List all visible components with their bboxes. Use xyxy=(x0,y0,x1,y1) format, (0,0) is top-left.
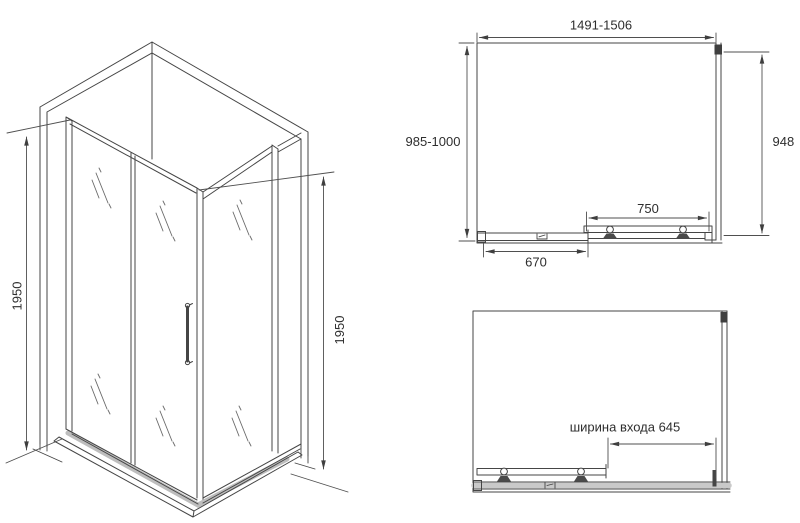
glass-reflection-mark xyxy=(232,406,251,446)
height-left-label: 1950 xyxy=(10,282,25,311)
sliding-door-bar-open xyxy=(477,465,606,482)
dimension-entrance-width: ширина входа 645 xyxy=(570,420,716,479)
fixed-panel-label: 670 xyxy=(525,255,547,270)
bottom-rail xyxy=(473,470,730,491)
dimension-fixed-panel-width: 670 xyxy=(484,244,589,270)
door-panel-label: 750 xyxy=(637,201,659,216)
latch-detail xyxy=(537,234,547,239)
bottom-rail-and-tray xyxy=(54,429,302,517)
wall-profile xyxy=(715,43,723,240)
glass-reflection-mark xyxy=(156,201,175,241)
glass-reflection-mark xyxy=(91,374,110,414)
shower-enclosure-technical-drawing: 1950 1950 xyxy=(0,0,800,523)
entrance-width-label: ширина входа 645 xyxy=(570,420,681,435)
dimension-height-left: 1950 xyxy=(6,120,70,463)
isometric-view: 1950 1950 xyxy=(6,42,348,517)
width-range-label: 1491-1506 xyxy=(570,18,632,33)
sliding-door-bar xyxy=(584,226,716,243)
enclosure-outline xyxy=(473,311,730,492)
glass-frame xyxy=(66,117,301,502)
dimension-depth-right: 948 xyxy=(724,52,794,236)
glass-reflection-mark xyxy=(156,406,175,446)
dimension-depth-left: 985-1000 xyxy=(406,43,475,241)
technical-drawing-canvas: 1950 1950 xyxy=(0,0,800,523)
back-walls xyxy=(33,42,315,469)
glass-reflection-mark xyxy=(233,200,252,240)
side-panel-label: 948 xyxy=(773,134,795,149)
top-view-closed: 1491-1506 985-1000 948 750 670 xyxy=(406,18,795,270)
enclosure-outline xyxy=(477,43,722,243)
wall-profile xyxy=(721,311,728,489)
height-right-label: 1950 xyxy=(332,316,347,345)
top-view-open: ширина входа 645 xyxy=(473,311,730,492)
door-handle xyxy=(185,303,192,364)
fixed-panel-bar xyxy=(477,230,588,243)
depth-range-label: 985-1000 xyxy=(406,134,461,149)
wall-profile-cap xyxy=(721,312,728,323)
extension-lines xyxy=(199,172,348,492)
dimension-width: 1491-1506 xyxy=(477,18,716,43)
glass-reflection-mark xyxy=(92,168,111,208)
dimension-height-right: 1950 xyxy=(199,172,348,492)
wall-profile-cap xyxy=(715,45,723,55)
glass-reflection-marks xyxy=(91,168,252,446)
